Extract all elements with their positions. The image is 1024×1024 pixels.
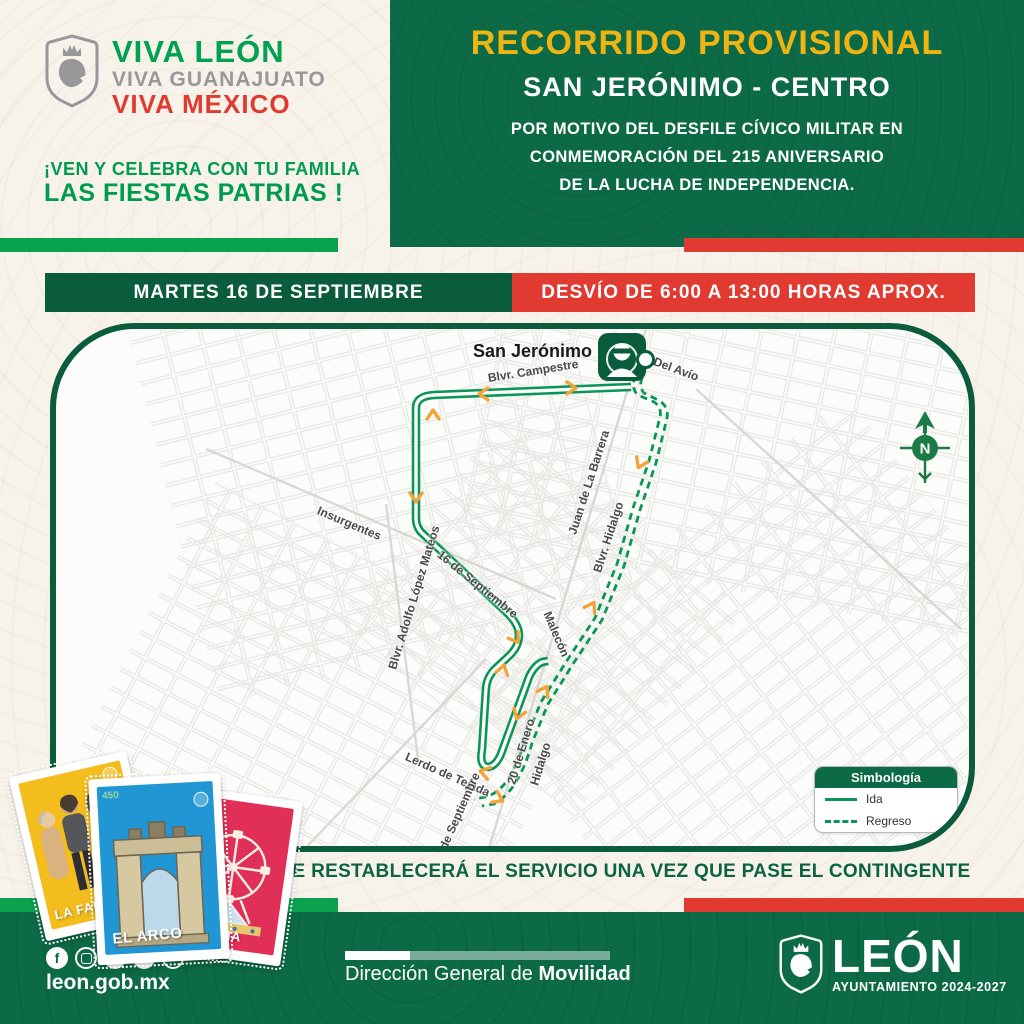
detour-text: DESVÍO DE 6:00 A 13:00 HORAS APROX. — [541, 282, 946, 304]
instagram-icon — [75, 947, 97, 969]
route-name: SAN JERÓNIMO - CENTRO — [390, 72, 1024, 103]
invite-line1: ¡VEN Y CELEBRA CON TU FAMILIA — [44, 159, 360, 179]
street-label: Blvr. Hidalgo — [590, 500, 626, 574]
invite-line2: LAS FIESTAS PATRIAS ! — [44, 179, 360, 207]
legend-item-ida: Ida — [815, 788, 957, 810]
street-label: Juan de La Barrera — [565, 428, 612, 536]
viva-leon-text: VIVA LEÓN — [112, 36, 326, 69]
viva-mexico-text: VIVA MÉXICO — [112, 91, 326, 118]
tricolor-strip-red-bottom — [684, 898, 1024, 912]
dashed-line-swatch — [825, 820, 857, 823]
panel-title: RECORRIDO PROVISIONAL — [390, 24, 1024, 63]
website-url: leon.gob.mx — [46, 971, 170, 995]
tricolor-strip-green-top — [0, 238, 338, 252]
service-notice: SE RESTABLECERÁ EL SERVICIO UNA VEZ QUE … — [240, 861, 1010, 883]
fiestas-invite: ¡VEN Y CELEBRA CON TU FAMILIA LAS FIESTA… — [44, 159, 360, 207]
department-bar — [345, 951, 610, 960]
street-label: Insurgentes — [315, 504, 383, 543]
legend-regreso-label: Regreso — [866, 814, 911, 828]
compass-letter: N — [920, 441, 931, 458]
origin-label: San Jerónimo — [386, 341, 592, 362]
lion-head-icon — [59, 59, 85, 87]
compass-north-icon: N — [894, 409, 956, 487]
card-number: 450 — [102, 790, 119, 802]
facebook-icon: f — [46, 947, 68, 969]
dept-bold: Movilidad — [538, 963, 630, 985]
panel-reason: POR MOTIVO DEL DESFILE CÍVICO MILITAR EN… — [390, 115, 1024, 199]
transit-detour-poster: VIVA LEÓN VIVA GUANAJUATO VIVA MÉXICO ¡V… — [0, 0, 1024, 1024]
viva-guanajuato-text: VIVA GUANAJUATO — [112, 69, 326, 91]
route-terminal-dot — [636, 350, 655, 369]
detour-banner: DESVÍO DE 6:00 A 13:00 HORAS APROX. — [512, 273, 975, 312]
legend-item-regreso: Regreso — [815, 810, 957, 832]
loteria-card-arco: 450 EL ARCO — [88, 773, 230, 966]
leon-city-logo: LEÓN AYUNTAMIENTO 2024-2027 — [778, 934, 1007, 994]
legend-ida-label: Ida — [866, 792, 883, 806]
legend: Simbología Ida Regreso — [814, 766, 958, 833]
street-label: Del Avío — [652, 354, 701, 383]
dept-regular: Dirección General de — [345, 963, 538, 985]
route-map: Blvr. CampestreDel AvíoInsurgentes16 de … — [50, 323, 975, 852]
crown-icon — [63, 45, 81, 56]
tricolor-strip-red-top — [684, 238, 1024, 252]
reason-line1: POR MOTIVO DEL DESFILE CÍVICO MILITAR EN — [390, 115, 1024, 143]
leon-shield-icon — [778, 934, 824, 994]
announcement-panel: RECORRIDO PROVISIONAL SAN JERÓNIMO - CEN… — [390, 0, 1024, 247]
leon-wordmark: LEÓN — [832, 934, 1007, 978]
ayuntamiento-term: AYUNTAMIENTO 2024-2027 — [832, 980, 1007, 994]
street-label: 16 de Septiembre — [435, 548, 521, 621]
solid-line-swatch — [825, 798, 857, 801]
street-label: Hidalgo — [527, 741, 553, 787]
date-banner: MARTES 16 DE SEPTIEMBRE — [45, 273, 512, 312]
leon-shield-logo-gray — [44, 34, 100, 108]
brand-text: VIVA LEÓN VIVA GUANAJUATO VIVA MÉXICO — [112, 36, 326, 118]
street-label: Malecón — [541, 609, 573, 659]
reason-line3: DE LA LUCHA DE INDEPENDENCIA. — [390, 171, 1024, 199]
reason-line2: CONMEMORACIÓN DEL 215 ANIVERSARIO — [390, 143, 1024, 171]
legend-title: Simbología — [815, 767, 957, 788]
street-label: Blvr. Adolfo López Mateos — [385, 524, 442, 671]
department-name: Dirección General de Movilidad — [345, 963, 631, 986]
date-text: MARTES 16 DE SEPTIEMBRE — [133, 282, 423, 304]
